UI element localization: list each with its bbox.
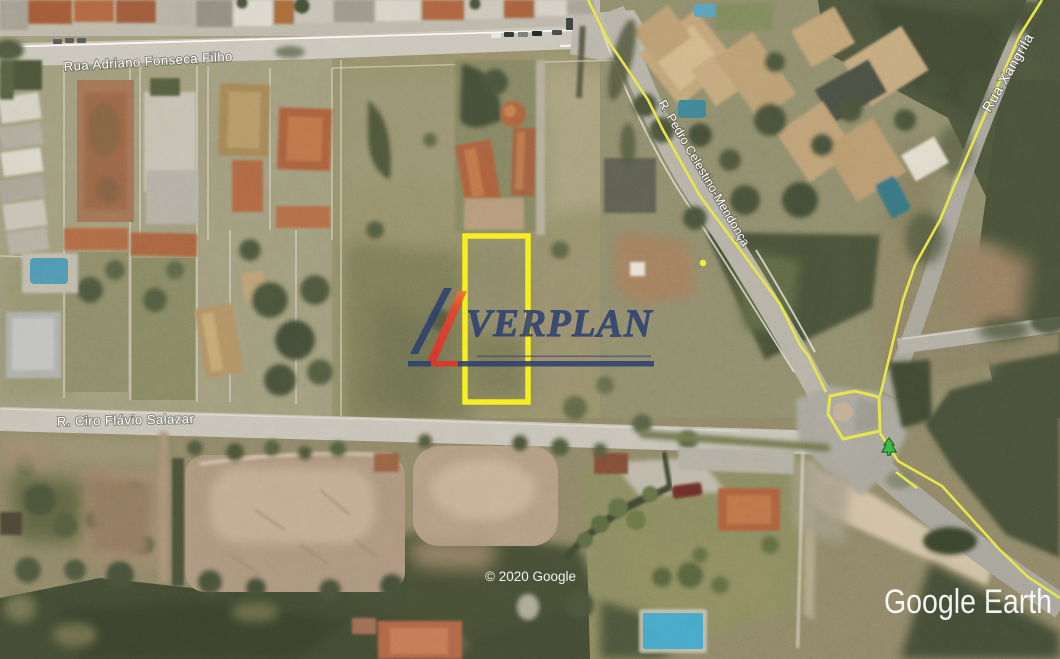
svg-text:© 2020 Google: © 2020 Google (485, 569, 576, 584)
svg-text:VERPLAN: VERPLAN (466, 302, 654, 345)
svg-text:Google Earth: Google Earth (884, 583, 1052, 621)
svg-text:R. Ciro Flávio Salazar: R. Ciro Flávio Salazar (57, 411, 195, 429)
